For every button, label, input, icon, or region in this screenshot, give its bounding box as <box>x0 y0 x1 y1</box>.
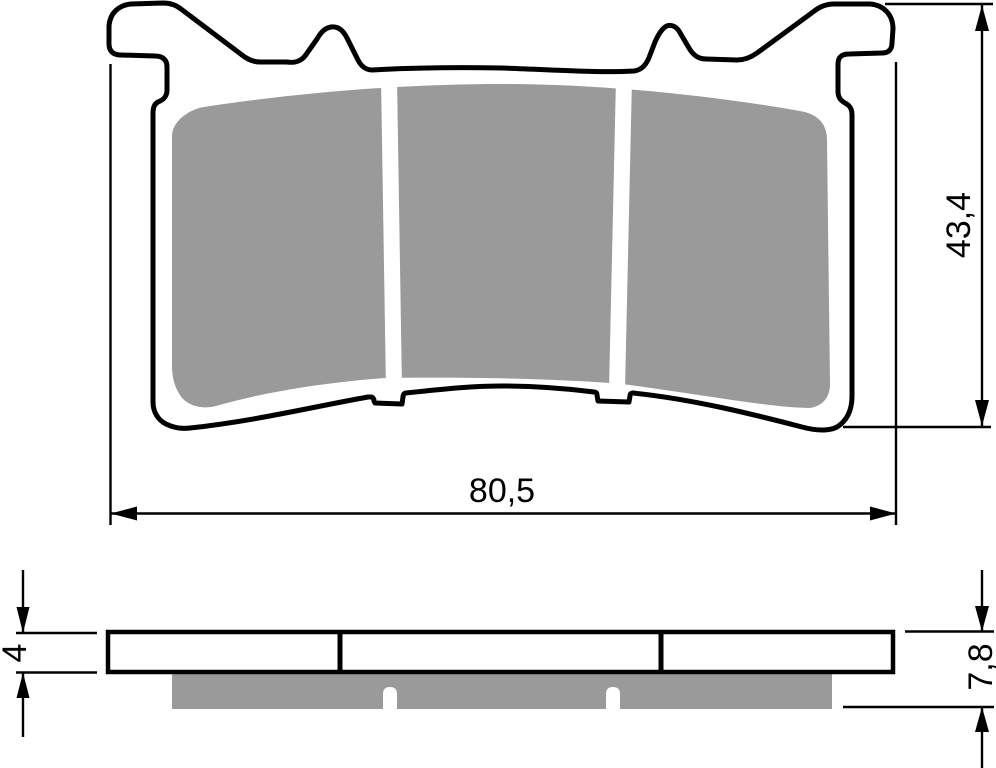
backplate-side <box>108 632 893 672</box>
arrowhead-total-top <box>975 606 989 632</box>
arrowhead-total-bottom <box>975 707 989 732</box>
arrowhead-height-bottom <box>975 400 989 426</box>
friction-material-side <box>172 672 832 709</box>
dimension-height: 43,4 <box>843 4 993 427</box>
dimension-plate-thickness: 4 <box>0 570 97 737</box>
side-view <box>108 632 893 710</box>
drawing-canvas: 80,5 43,4 4 <box>0 0 996 768</box>
friction-notch-right <box>606 687 620 710</box>
arrowhead-width-left <box>111 507 137 521</box>
friction-notch-left <box>383 687 397 710</box>
arrowhead-plate-bottom <box>17 673 30 699</box>
arrowhead-width-right <box>870 507 896 521</box>
arrowhead-height-top <box>975 5 989 31</box>
arrowhead-plate-top <box>17 607 30 633</box>
dimension-label-height: 43,4 <box>940 192 978 258</box>
dimension-label-width: 80,5 <box>469 472 535 510</box>
dimension-label-total-thickness: 7,8 <box>962 643 996 690</box>
brake-pad-drawing: 80,5 43,4 4 <box>0 0 996 768</box>
dimension-label-plate-thickness: 4 <box>0 644 34 663</box>
front-view <box>109 3 893 430</box>
friction-material-band <box>172 84 830 408</box>
